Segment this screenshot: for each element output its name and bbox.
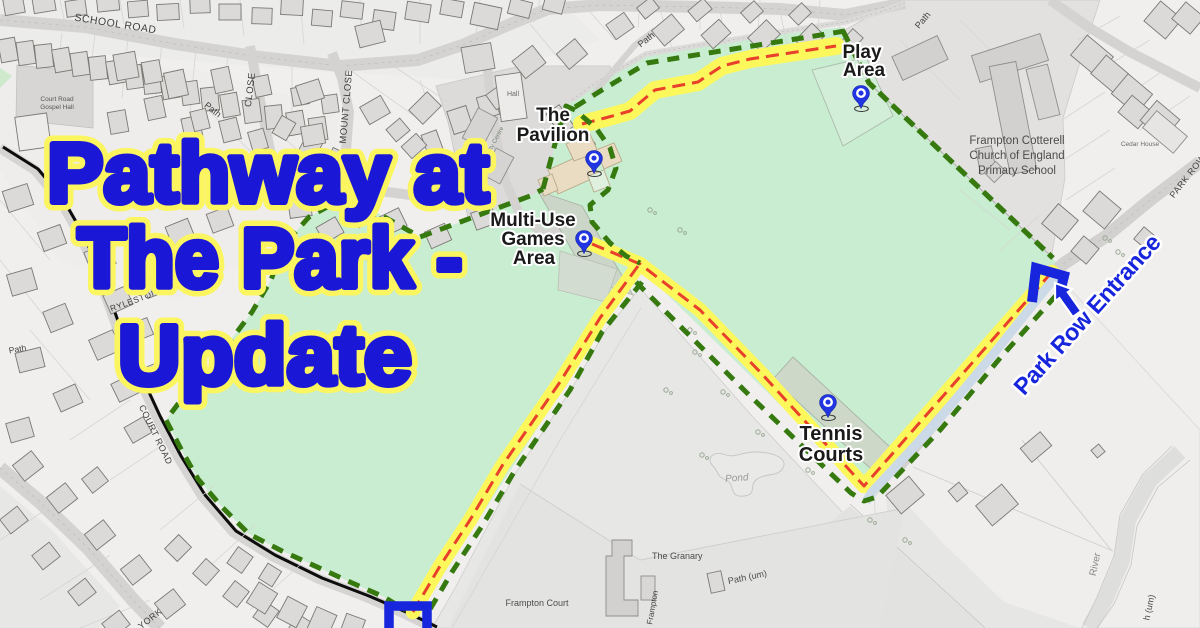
svg-text:Pavilion: Pavilion	[517, 125, 590, 146]
svg-text:Frampton Cotterell: Frampton Cotterell	[969, 135, 1064, 147]
svg-text:Area: Area	[843, 60, 886, 81]
svg-text:Courts: Courts	[799, 444, 863, 466]
svg-text:Hall: Hall	[507, 91, 520, 98]
svg-text:Primary School: Primary School	[978, 165, 1056, 177]
svg-text:Area: Area	[513, 248, 556, 269]
svg-text:Court Road: Court Road	[40, 96, 74, 103]
svg-text:Tennis: Tennis	[800, 423, 863, 445]
svg-text:Frampton Court: Frampton Court	[505, 598, 569, 608]
svg-text:Pathway at: Pathway at	[47, 126, 489, 220]
svg-text:The Park -: The Park -	[78, 211, 463, 305]
svg-text:Church of England: Church of England	[969, 150, 1064, 162]
svg-text:Multi-Use: Multi-Use	[490, 210, 576, 231]
svg-text:Update: Update	[118, 308, 412, 402]
svg-text:Cedar House: Cedar House	[1121, 141, 1160, 148]
svg-text:Games: Games	[501, 229, 564, 250]
svg-text:Pond: Pond	[725, 472, 750, 485]
svg-text:Gospel Hall: Gospel Hall	[40, 104, 74, 111]
svg-text:The: The	[536, 105, 570, 126]
svg-text:The Granary: The Granary	[652, 551, 703, 561]
